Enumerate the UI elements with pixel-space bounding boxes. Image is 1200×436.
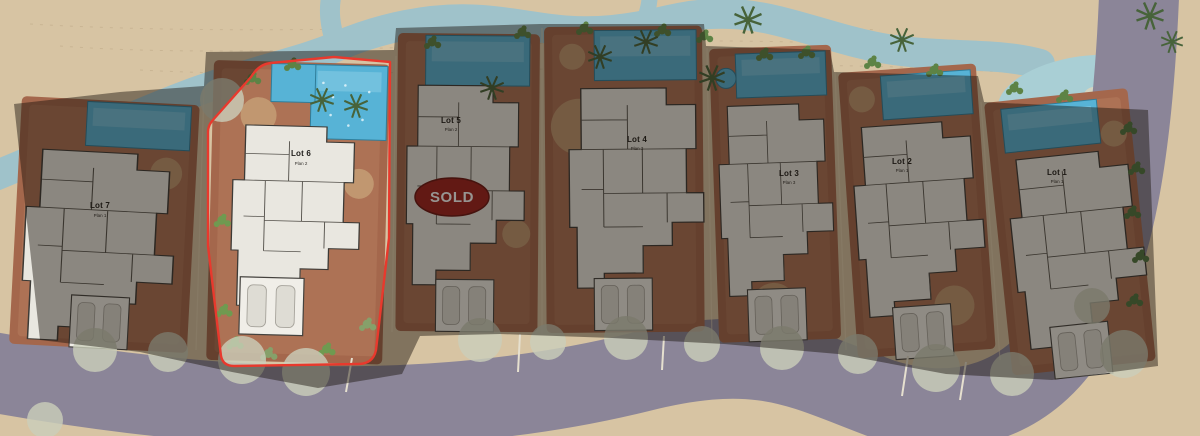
water-branch [642,0,650,26]
garage [239,277,304,336]
lot-6-label: Lot 6 [291,149,311,158]
water-branch [330,0,336,44]
lot-6-plan: Plan 2 [295,161,308,166]
pool [271,64,316,103]
site-plan-canvas: Lot 7 Plan 1 Lot 6 Plan 2 Lot 5 Plan 2 L… [0,0,1200,436]
